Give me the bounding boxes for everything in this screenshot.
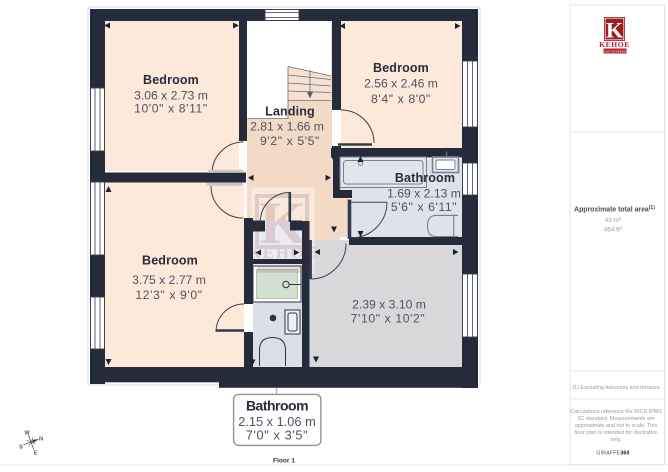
svg-text:9'2" x 5'5": 9'2" x 5'5": [260, 134, 320, 148]
svg-text:1.69 x 2.13 m: 1.69 x 2.13 m: [387, 187, 461, 201]
svg-text:3.06 x 2.73 m: 3.06 x 2.73 m: [134, 89, 208, 103]
svg-text:W: W: [24, 431, 30, 437]
svg-text:KEHOE: KEHOE: [599, 40, 630, 49]
svg-text:3.75 x 2.77 m: 3.75 x 2.77 m: [132, 273, 206, 287]
svg-text:5'6" x 6'11": 5'6" x 6'11": [391, 200, 457, 214]
svg-text:Landing: Landing: [265, 105, 315, 119]
svg-text:E: E: [34, 451, 38, 457]
svg-text:7'0" x 3'5": 7'0" x 3'5": [246, 428, 309, 443]
svg-text:2.39 x 3.10 m: 2.39 x 3.10 m: [352, 298, 426, 312]
svg-text:Approximate total area(1): Approximate total area(1): [574, 205, 655, 214]
svg-text:2.81 x 1.66 m: 2.81 x 1.66 m: [250, 120, 324, 134]
svg-text:N: N: [39, 437, 43, 443]
svg-text:Bedroom: Bedroom: [142, 254, 198, 268]
svg-text:S: S: [19, 445, 23, 451]
svg-text:8'4" x 8'0": 8'4" x 8'0": [371, 92, 431, 106]
svg-text:approximate and not to scale.: approximate and not to scale. This: [575, 423, 658, 429]
svg-text:K: K: [606, 18, 623, 43]
svg-text:Bedroom: Bedroom: [373, 61, 429, 75]
svg-text:GIRAFFE360: GIRAFFE360: [596, 451, 629, 457]
svg-text:only.: only.: [611, 437, 622, 443]
svg-text:Bedroom: Bedroom: [143, 73, 199, 87]
svg-text:12'3" x 9'0": 12'3" x 9'0": [135, 288, 202, 302]
svg-text:(1) Excluding balconies and te: (1) Excluding balconies and terraces: [572, 385, 659, 391]
svg-text:Bathroom: Bathroom: [395, 171, 455, 185]
svg-text:Floor 1: Floor 1: [273, 458, 295, 465]
svg-text:Calculations reference the RIC: Calculations reference the RICS IPMS: [570, 409, 662, 415]
svg-text:floor plan is intended for ill: floor plan is intended for illustration: [574, 430, 657, 436]
svg-text:Bathroom: Bathroom: [246, 398, 308, 414]
svg-text:AUCTIONEERS: AUCTIONEERS: [604, 49, 626, 53]
svg-text:7'10" x 10'2": 7'10" x 10'2": [351, 312, 426, 326]
svg-text:3C standard. Measurements are: 3C standard. Measurements are: [577, 416, 654, 422]
svg-text:2.56 x 2.46 m: 2.56 x 2.46 m: [364, 77, 438, 91]
svg-text:KEHOE: KEHOE: [248, 243, 318, 262]
svg-text:10'0" x 8'11": 10'0" x 8'11": [134, 102, 208, 116]
